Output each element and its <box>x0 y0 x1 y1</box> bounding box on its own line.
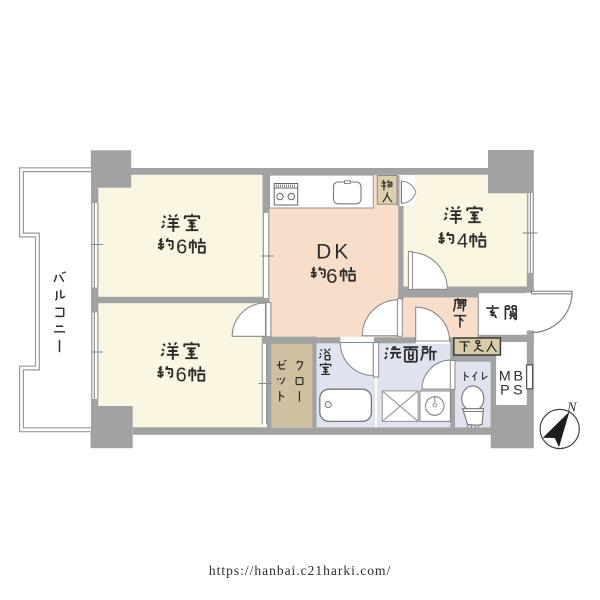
svg-text:6: 6 <box>326 265 337 288</box>
svg-text:https://hanbai.c21harki.com/: https://hanbai.c21harki.com/ <box>209 563 391 578</box>
svg-text:6: 6 <box>176 236 187 258</box>
svg-text:PS: PS <box>500 383 526 399</box>
svg-text:N: N <box>566 401 577 416</box>
svg-text:4: 4 <box>457 230 468 252</box>
svg-text:6: 6 <box>176 364 187 386</box>
svg-text:DK: DK <box>316 240 351 263</box>
